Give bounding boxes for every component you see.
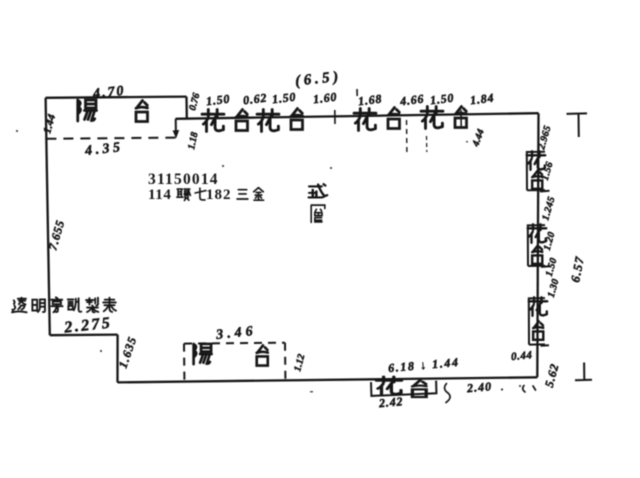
svg-text:4.35: 4.35 <box>83 140 124 159</box>
svg-text:1.50: 1.50 <box>429 91 455 108</box>
svg-text:31150014: 31150014 <box>148 171 219 188</box>
svg-text:1.84: 1.84 <box>469 91 495 108</box>
svg-text:1.68: 1.68 <box>357 92 383 109</box>
svg-text:1.30: 1.30 <box>546 277 562 298</box>
svg-text:5.62: 5.62 <box>542 362 562 389</box>
svg-text:1.12: 1.12 <box>292 353 307 373</box>
svg-text:4.66: 4.66 <box>398 92 425 109</box>
svg-text:0.44: 0.44 <box>511 349 533 363</box>
svg-text:(6.5): (6.5) <box>294 69 342 90</box>
svg-text:114: 114 <box>148 187 171 203</box>
svg-text:0.62: 0.62 <box>242 91 268 108</box>
svg-text:4.70: 4.70 <box>91 84 126 102</box>
svg-text:1.635: 1.635 <box>116 334 140 370</box>
svg-text:182: 182 <box>206 187 232 203</box>
svg-text:2.42: 2.42 <box>377 394 403 410</box>
svg-text:2.275: 2.275 <box>63 315 114 337</box>
svg-text:1.245: 1.245 <box>540 195 557 222</box>
svg-text:1.50: 1.50 <box>271 90 297 107</box>
svg-text:1.56: 1.56 <box>540 160 556 181</box>
svg-text:2.40: 2.40 <box>465 379 492 395</box>
svg-text:6.57: 6.57 <box>568 255 587 284</box>
svg-text:1.50: 1.50 <box>544 256 560 277</box>
svg-text:0.76: 0.76 <box>187 92 202 112</box>
svg-text:1.60: 1.60 <box>312 90 338 107</box>
svg-text:1.18: 1.18 <box>186 131 200 150</box>
svg-text:6.18 ↓ 1.44: 6.18 ↓ 1.44 <box>388 355 461 375</box>
svg-text:4.44: 4.44 <box>470 128 487 149</box>
svg-text:1.44: 1.44 <box>41 113 58 135</box>
svg-text:1.50: 1.50 <box>205 92 231 109</box>
svg-text:3.46: 3.46 <box>214 324 257 343</box>
svg-text:1.20: 1.20 <box>542 230 558 251</box>
